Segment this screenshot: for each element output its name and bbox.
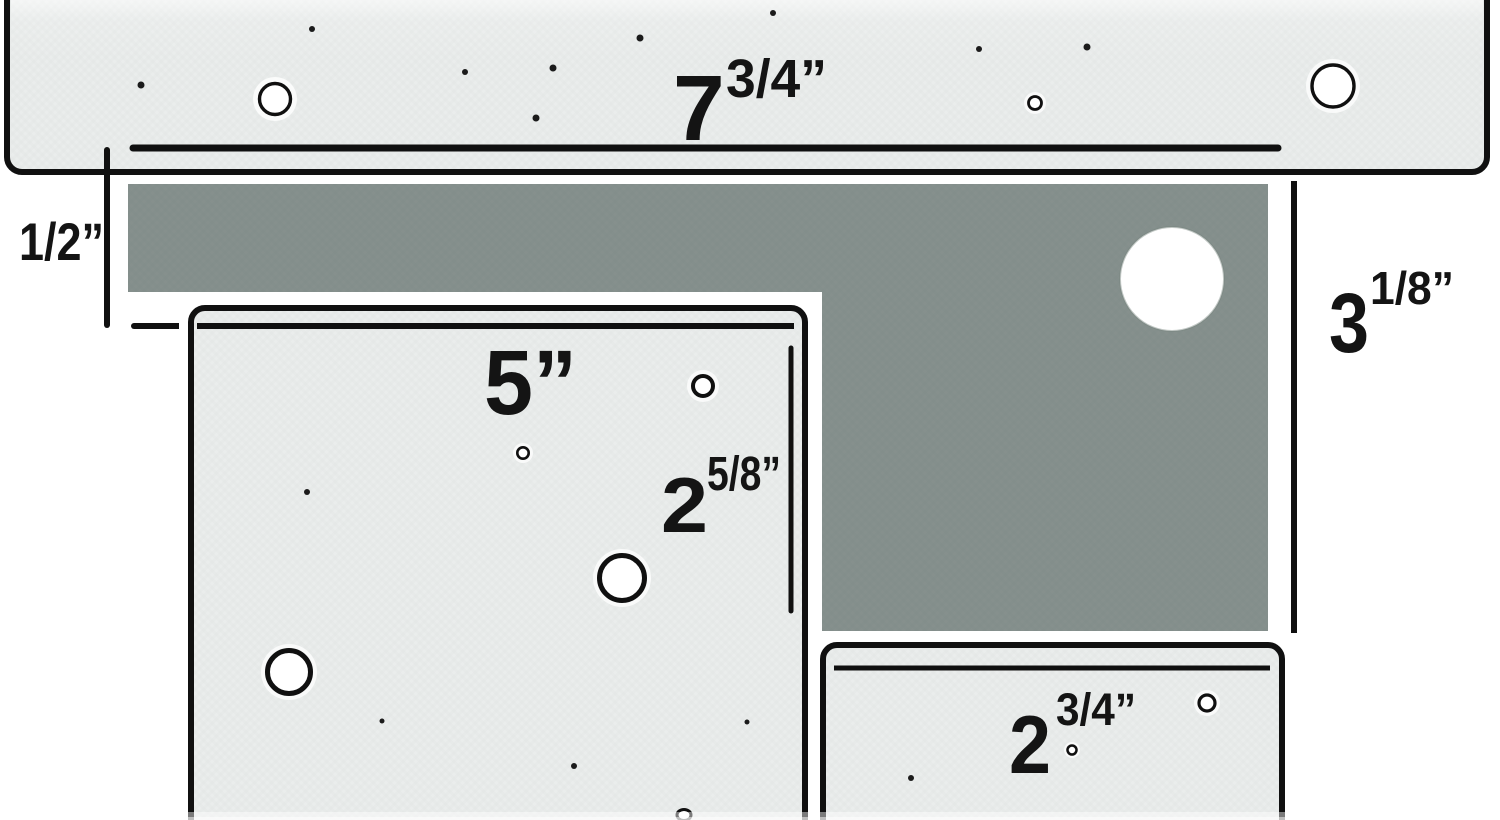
svg-text:3: 3 bbox=[1329, 276, 1369, 370]
svg-text:2: 2 bbox=[1009, 698, 1051, 791]
svg-text:1/8”: 1/8” bbox=[1370, 262, 1454, 314]
svg-text:5/8”: 5/8” bbox=[707, 448, 781, 501]
svg-text:5”: 5” bbox=[484, 332, 577, 434]
svg-text:3/4”: 3/4” bbox=[726, 49, 827, 109]
svg-text:2: 2 bbox=[661, 461, 708, 549]
svg-text:3/4”: 3/4” bbox=[1056, 684, 1136, 735]
svg-text:7: 7 bbox=[673, 56, 725, 160]
svg-text:1/2”: 1/2” bbox=[19, 213, 104, 272]
